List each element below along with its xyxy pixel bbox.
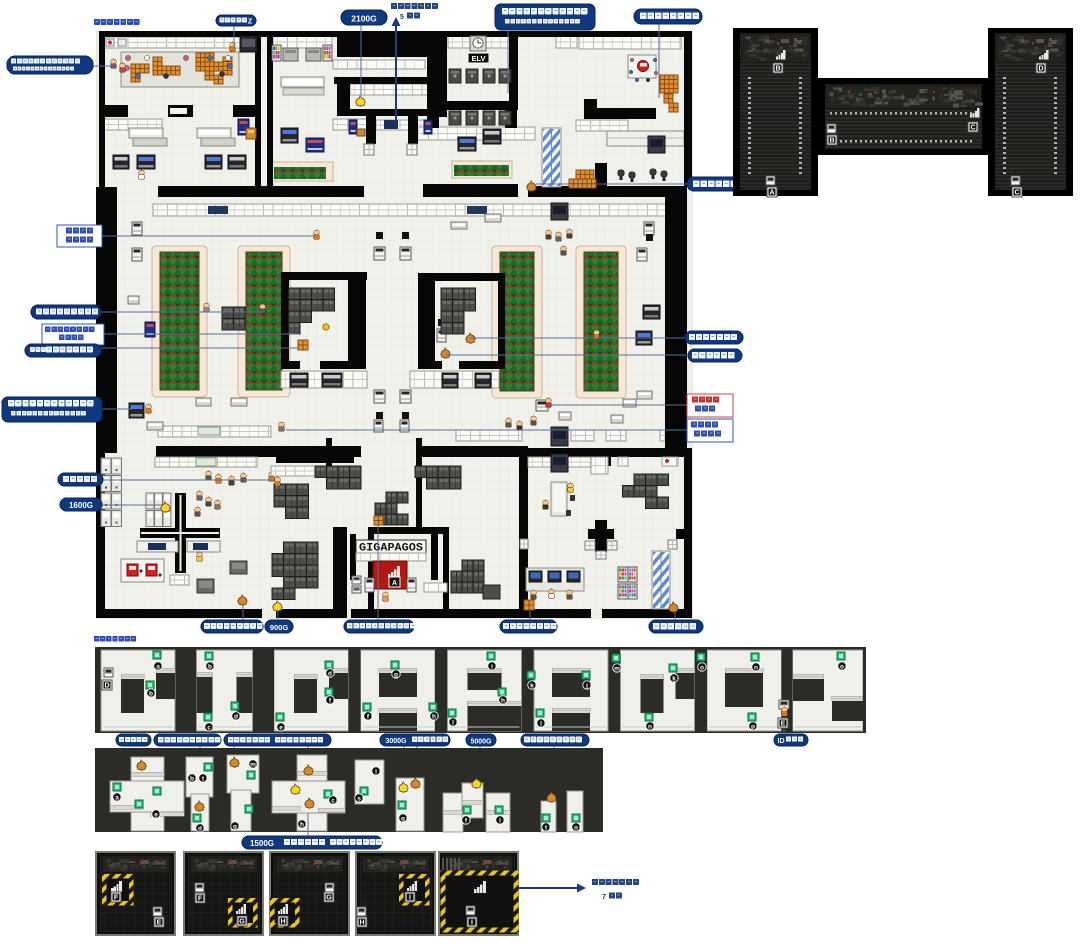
svg-text:b: b [208,663,212,670]
svg-text:l: l [452,719,454,726]
svg-text:n: n [754,664,758,671]
svg-text:5000G: 5000G [470,739,492,746]
svg-text:m: m [250,761,256,768]
svg-text:I: I [471,919,473,926]
svg-text:i: i [375,768,377,775]
svg-text:m: m [614,665,620,672]
svg-text:s: s [357,795,361,802]
svg-text:F: F [114,894,119,901]
svg-text:3000G: 3000G [385,738,407,745]
svg-text:i: i [491,663,493,670]
svg-text:C: C [1014,189,1019,196]
svg-text:e: e [279,724,283,731]
svg-text:g: g [233,823,237,830]
svg-text:Z: Z [248,19,253,26]
svg-text:o: o [700,664,704,671]
svg-text:G: G [239,918,245,925]
svg-text:d: d [328,670,332,677]
svg-text:n: n [648,723,652,730]
svg-text:I: I [409,894,411,901]
svg-text:k: k [672,675,676,682]
svg-text:E: E [157,919,162,926]
svg-text:h: h [501,697,505,704]
svg-text:G: G [326,894,332,901]
svg-text:o: o [840,663,844,670]
svg-text:b: b [149,690,153,697]
svg-text:e: e [154,811,158,818]
svg-text:d: d [234,713,238,720]
svg-text:a: a [115,794,119,801]
svg-text:b: b [190,775,194,782]
svg-text:h: h [432,713,436,720]
svg-text:c: c [207,724,211,731]
svg-text:5: 5 [400,14,404,21]
svg-text:g: g [394,671,398,678]
svg-text:F: F [198,895,203,902]
svg-text:H: H [280,918,285,925]
svg-text:E: E [781,720,786,727]
svg-text:k: k [530,682,534,689]
svg-text:A: A [769,189,774,196]
svg-text:ELV: ELV [471,54,485,63]
svg-text:p: p [751,723,755,730]
svg-text:7: 7 [602,894,606,901]
svg-text:1500G: 1500G [250,839,274,848]
svg-text:h: h [300,821,304,828]
svg-text:H: H [359,919,364,926]
svg-text:o: o [574,824,578,831]
svg-text:d: d [198,825,202,832]
svg-text:l: l [499,817,501,824]
svg-text:B: B [829,137,834,144]
svg-text:2100G: 2100G [351,14,377,24]
svg-text:a: a [156,663,160,670]
svg-text:D: D [1038,65,1043,72]
svg-text:900G: 900G [270,623,289,632]
svg-text:c: c [331,797,335,804]
svg-text:ID: ID [778,738,785,745]
svg-text:C: C [970,124,975,131]
svg-text:q: q [401,815,405,822]
svg-text:B: B [775,65,780,72]
svg-text:j: j [585,682,588,689]
svg-text:D: D [104,682,109,689]
svg-text:1600G: 1600G [69,501,93,510]
svg-text:A: A [392,580,397,587]
svg-text:l: l [540,720,542,727]
